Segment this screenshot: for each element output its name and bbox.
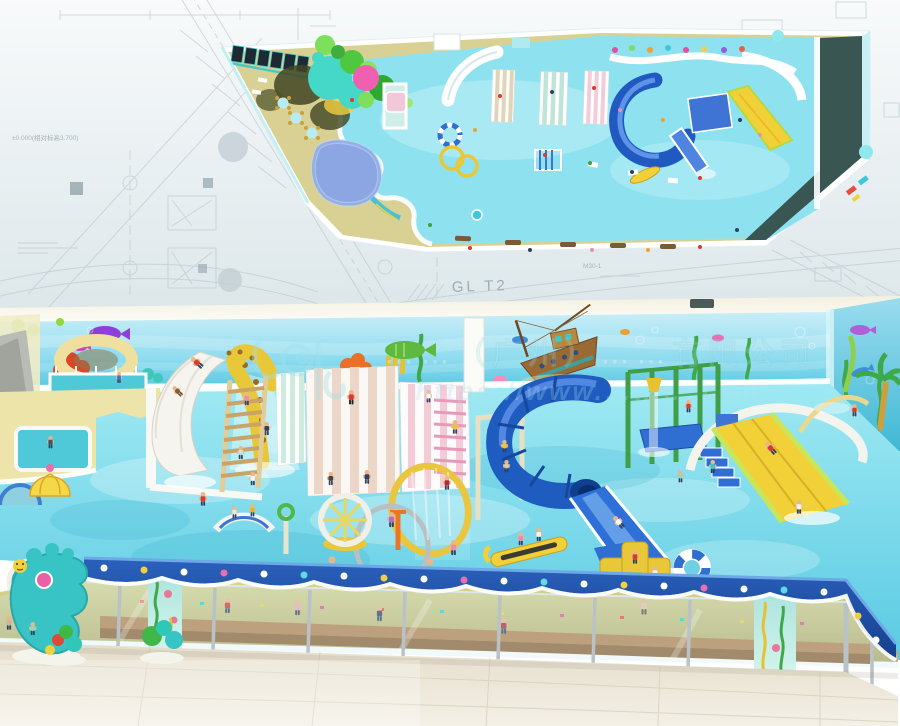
cad-elevation-label: ±0.000(相对标高3.700) [12, 133, 78, 142]
cad-beam-label: M30-1 [583, 263, 602, 270]
mint-striped-panel [276, 372, 306, 466]
waterpark-design-image: ±0.000(相对标高3.700) GL T2 M30-1 [0, 0, 900, 726]
watermark-url-text: https://www.……….com [415, 376, 764, 406]
plan-striped-mat-mint [539, 72, 568, 126]
floor-plan [222, 28, 873, 252]
watermark-company-text: ……（广州）……有限公司 [384, 337, 816, 371]
cad-grid-label: GL T2 [452, 277, 508, 296]
plan-striped-mat-beige [491, 70, 515, 123]
plan-striped-mat-pink [583, 71, 609, 125]
